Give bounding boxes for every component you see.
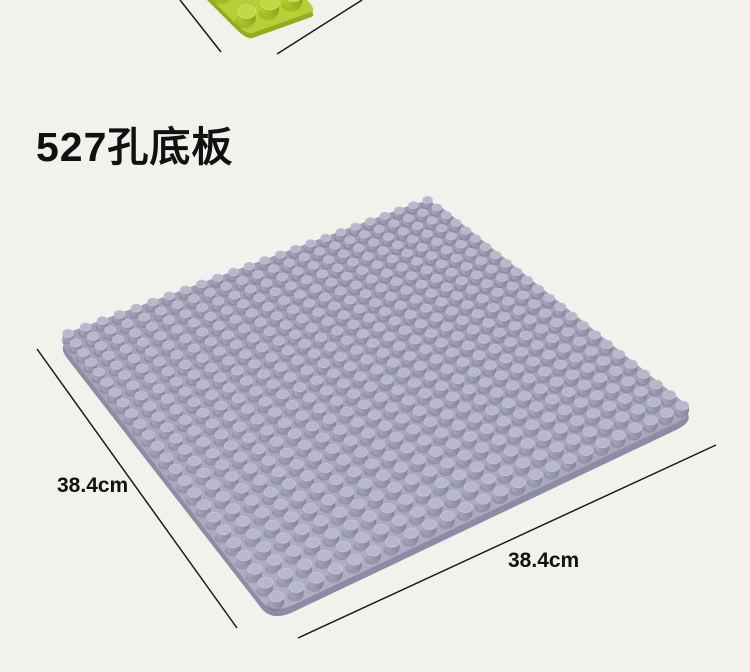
gray-baseplate — [61, 196, 689, 616]
green-baseplate-corner — [107, 0, 313, 38]
figure-canvas — [0, 0, 750, 672]
product-showcase: 527孔底板 38.4cm 38.4cm — [0, 0, 750, 672]
dimension-label-bottom: 38.4cm — [508, 549, 579, 573]
dimension-label-left: 38.4cm — [57, 474, 128, 498]
product-title: 527孔底板 — [36, 113, 233, 173]
